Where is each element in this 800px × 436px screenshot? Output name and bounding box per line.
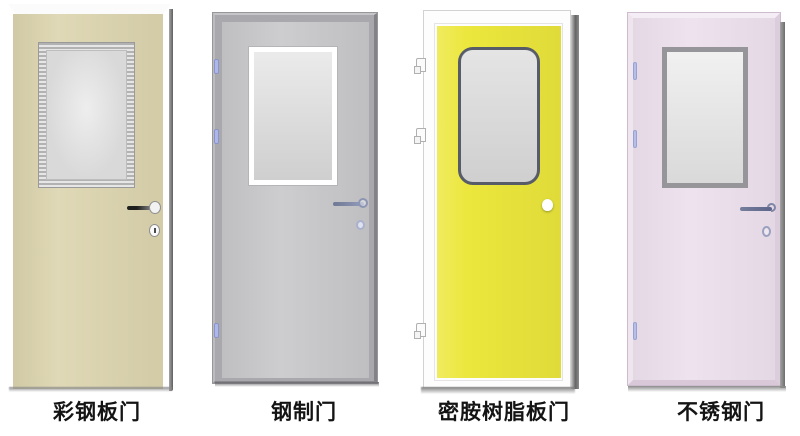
hinge-icon <box>633 130 637 148</box>
door-steel[interactable] <box>213 13 381 391</box>
caption-stainless-steel-door: 不锈钢门 <box>638 398 800 430</box>
door-floor-shadow <box>215 382 379 387</box>
door-vision-window <box>249 47 337 185</box>
keyhole-icon <box>762 226 771 237</box>
window-glass <box>46 50 127 180</box>
door-melamine-resin[interactable] <box>421 8 583 394</box>
hinge-icon <box>214 59 219 74</box>
door-floor-shadow <box>628 386 786 392</box>
door-vision-window <box>38 42 135 188</box>
keyhole-icon <box>149 224 160 237</box>
door-floor-shadow <box>9 387 172 392</box>
handle-rosette-icon <box>149 201 161 214</box>
hinge-icon <box>214 323 219 338</box>
hinge-icon <box>416 323 426 337</box>
caption-steel-door: 钢制门 <box>222 398 386 430</box>
door-edge-shadow <box>571 15 579 389</box>
caption-melamine-resin-door: 密胺树脂板门 <box>424 398 584 430</box>
hinge-icon <box>633 322 637 340</box>
hinge-icon <box>416 58 426 72</box>
keyhole-icon <box>356 220 365 230</box>
door-edge-shadow <box>780 22 785 388</box>
door-stainless-steel[interactable] <box>626 10 794 392</box>
door-types-figure: 彩钢板门 钢制门 密胺树脂板门 不锈钢门 <box>0 0 800 436</box>
door-edge-shadow <box>169 9 173 391</box>
door-knob-icon <box>542 199 553 211</box>
handle-rosette-icon <box>358 198 368 208</box>
door-vision-window <box>458 47 540 185</box>
hinge-icon <box>633 62 637 80</box>
caption-color-steel-panel-door: 彩钢板门 <box>14 398 180 430</box>
door-color-steel-panel[interactable] <box>8 4 178 394</box>
hinge-icon <box>416 128 426 142</box>
door-vision-window <box>662 47 748 188</box>
hinge-icon <box>214 129 219 144</box>
door-floor-shadow <box>421 387 575 394</box>
